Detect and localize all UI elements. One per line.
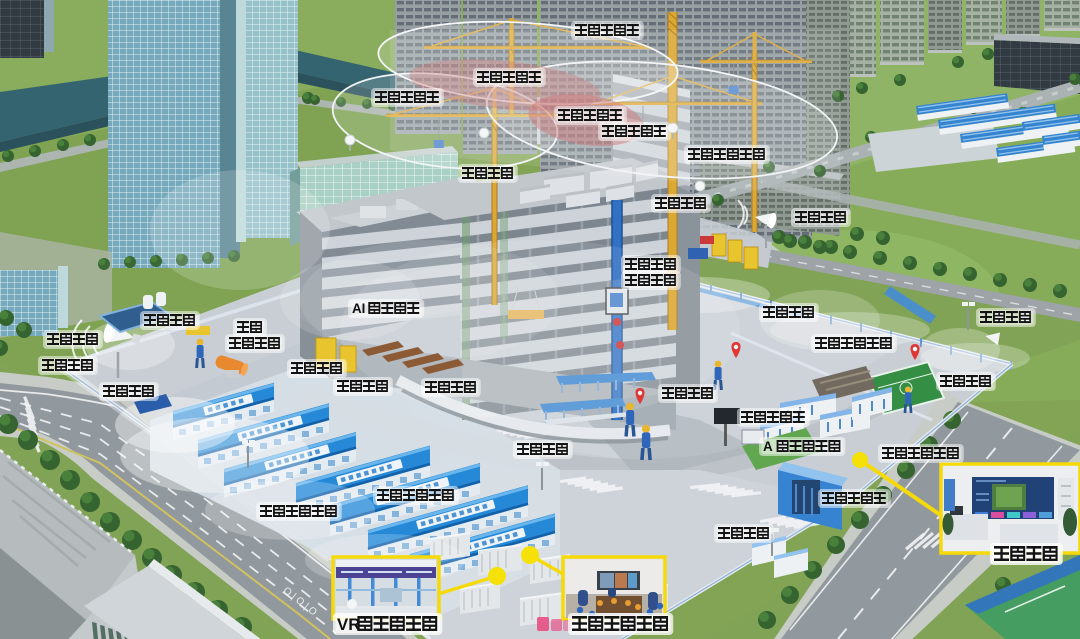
svg-text:VR: VR — [337, 615, 360, 634]
svg-text:A: A — [763, 439, 773, 454]
svg-text:AI: AI — [352, 301, 365, 316]
